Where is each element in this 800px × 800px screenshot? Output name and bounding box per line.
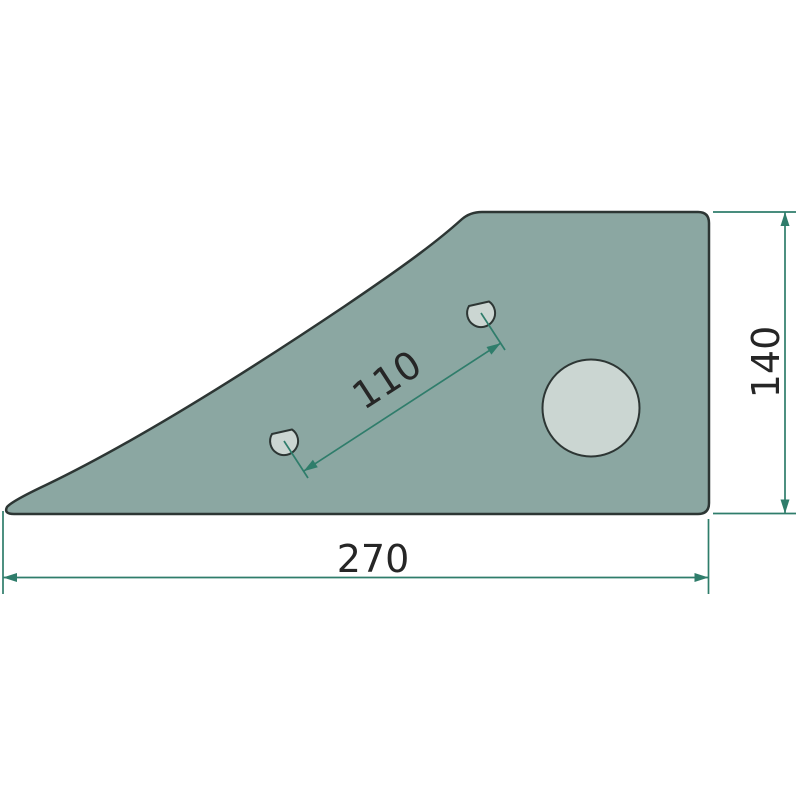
height-dimension-label: 140 [744,326,788,399]
height-arrowhead-top [781,212,790,226]
technical-drawing-canvas: 270 140 110 [0,0,800,800]
height-arrowhead-bottom [781,500,790,514]
large-hole [543,360,640,457]
width-arrowhead-left [3,573,17,582]
drawing-svg: 270 140 110 [0,0,800,800]
width-dimension-label: 270 [337,537,410,581]
width-arrowhead-right [695,573,709,582]
part [6,212,709,514]
